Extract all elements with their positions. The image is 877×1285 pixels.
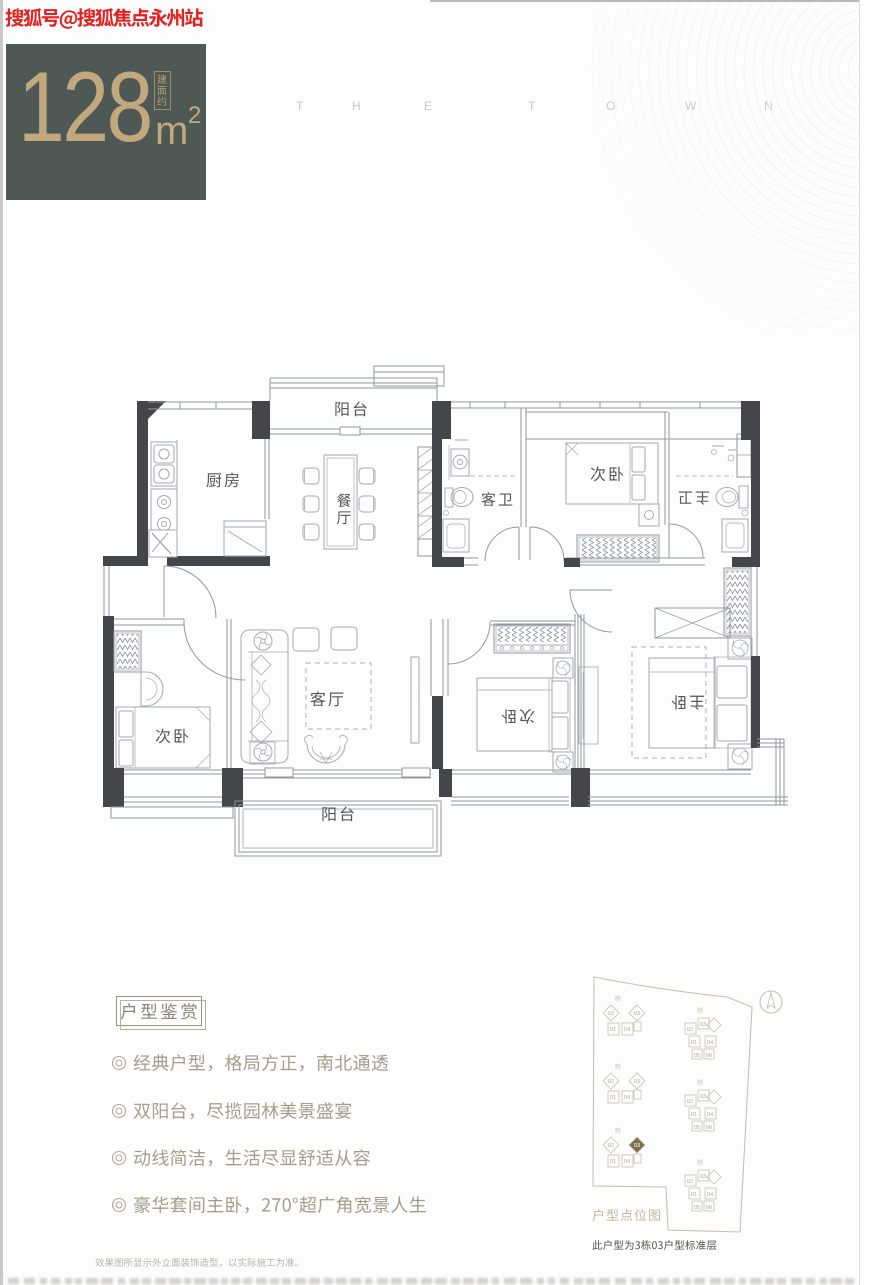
- svg-text:01: 01: [691, 1112, 697, 1118]
- svg-text:03: 03: [700, 1174, 706, 1180]
- svg-text:03: 03: [700, 1094, 706, 1100]
- svg-text:06: 06: [706, 1205, 712, 1211]
- svg-text:03: 03: [700, 1022, 706, 1028]
- svg-text:04: 04: [624, 1027, 631, 1033]
- svg-text:01: 01: [691, 1192, 697, 1198]
- svg-text:02: 02: [687, 1179, 693, 1185]
- svg-text:05: 05: [694, 1053, 700, 1059]
- svg-text:01: 01: [610, 1159, 616, 1165]
- svg-text:03: 03: [634, 1079, 640, 1085]
- svg-text:02: 02: [687, 1099, 693, 1105]
- svg-text:06: 06: [706, 1125, 712, 1131]
- svg-text:05: 05: [694, 1125, 700, 1131]
- svg-text:04: 04: [707, 1040, 714, 1046]
- svg-text:04: 04: [624, 1159, 631, 1165]
- svg-text:06: 06: [706, 1053, 712, 1059]
- svg-text:01: 01: [610, 1095, 616, 1101]
- svg-text:01: 01: [610, 1027, 616, 1033]
- svg-text:02: 02: [687, 1027, 693, 1033]
- svg-text:04: 04: [624, 1095, 631, 1101]
- svg-text:04: 04: [707, 1112, 714, 1118]
- svg-text:03: 03: [634, 1143, 640, 1149]
- svg-text:02: 02: [608, 1079, 614, 1085]
- svg-text:01: 01: [691, 1040, 697, 1046]
- svg-text:04: 04: [707, 1192, 714, 1198]
- svg-text:02: 02: [608, 1011, 614, 1017]
- svg-text:03: 03: [634, 1011, 640, 1017]
- svg-text:02: 02: [608, 1143, 614, 1149]
- svg-text:05: 05: [694, 1205, 700, 1211]
